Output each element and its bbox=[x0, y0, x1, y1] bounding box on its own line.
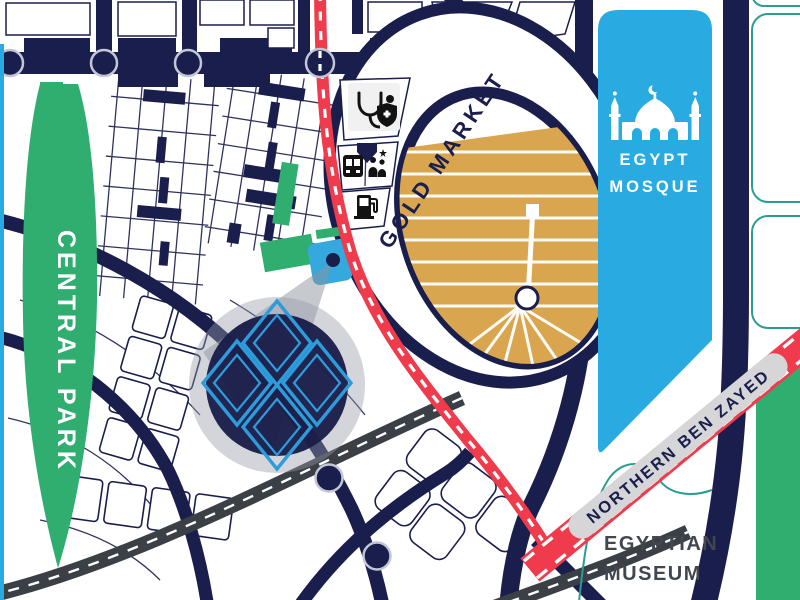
park-top-strip bbox=[40, 82, 63, 92]
location-dot bbox=[326, 253, 340, 267]
map-canvas: CENTRAL PARK GOLD MARKET bbox=[0, 0, 800, 600]
medical-icon bbox=[348, 83, 400, 131]
museum-label-line2: MUSEUM bbox=[604, 563, 702, 585]
intersection-node bbox=[364, 543, 391, 570]
intersection-node bbox=[175, 50, 201, 76]
location-marker bbox=[189, 297, 365, 473]
intersection-node bbox=[91, 50, 117, 76]
mosque-label-line2: MOSQUE bbox=[609, 178, 700, 196]
map-edge-accent bbox=[0, 44, 4, 600]
mosque-label-line1: EGYPT bbox=[620, 151, 691, 169]
intersection-node bbox=[316, 465, 343, 492]
museum-label-line1: EGYPTIAN bbox=[604, 533, 718, 555]
bus-icon bbox=[343, 155, 363, 177]
city-map-illustration: CENTRAL PARK GOLD MARKET bbox=[0, 0, 800, 600]
central-park-label: CENTRAL PARK bbox=[52, 230, 80, 473]
teal-district-east bbox=[752, 0, 800, 328]
